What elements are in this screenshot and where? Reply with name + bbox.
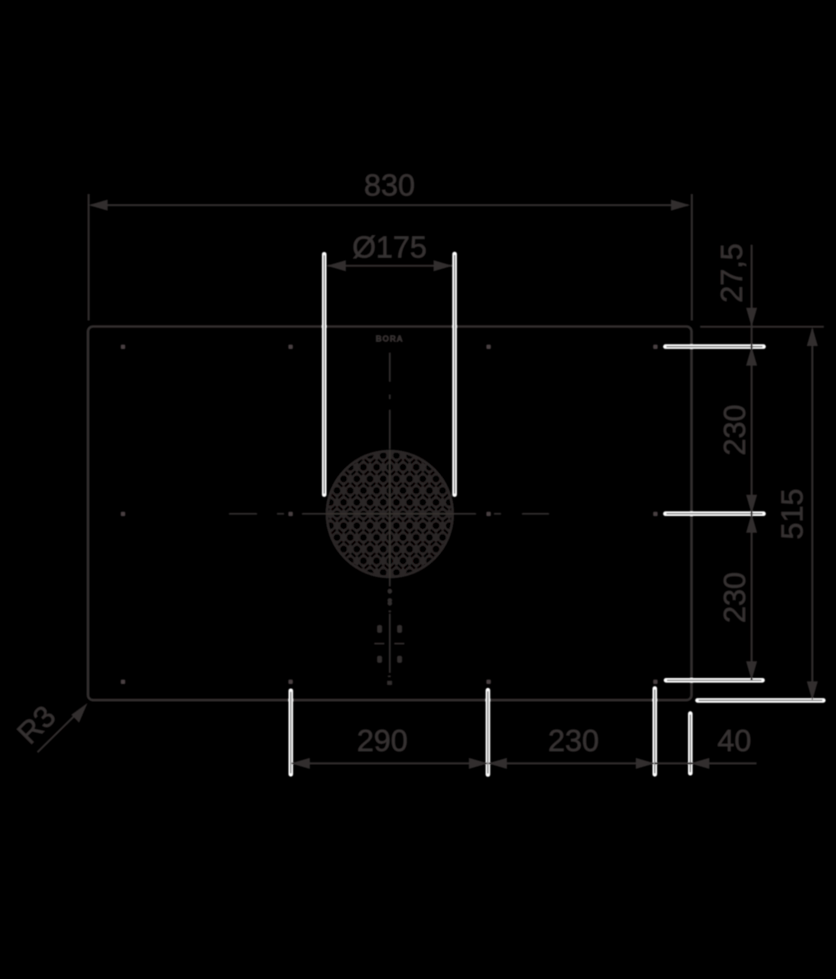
svg-text:830: 830	[364, 168, 415, 202]
svg-text:515: 515	[776, 489, 810, 540]
svg-text:230: 230	[718, 405, 752, 456]
svg-text:Ø175: Ø175	[352, 230, 427, 264]
svg-text:230: 230	[718, 572, 752, 623]
svg-text:27,5: 27,5	[715, 243, 749, 302]
svg-text:230: 230	[548, 724, 599, 758]
svg-text:BORA: BORA	[376, 335, 404, 344]
svg-text:290: 290	[357, 724, 408, 758]
svg-text:40: 40	[717, 724, 751, 758]
